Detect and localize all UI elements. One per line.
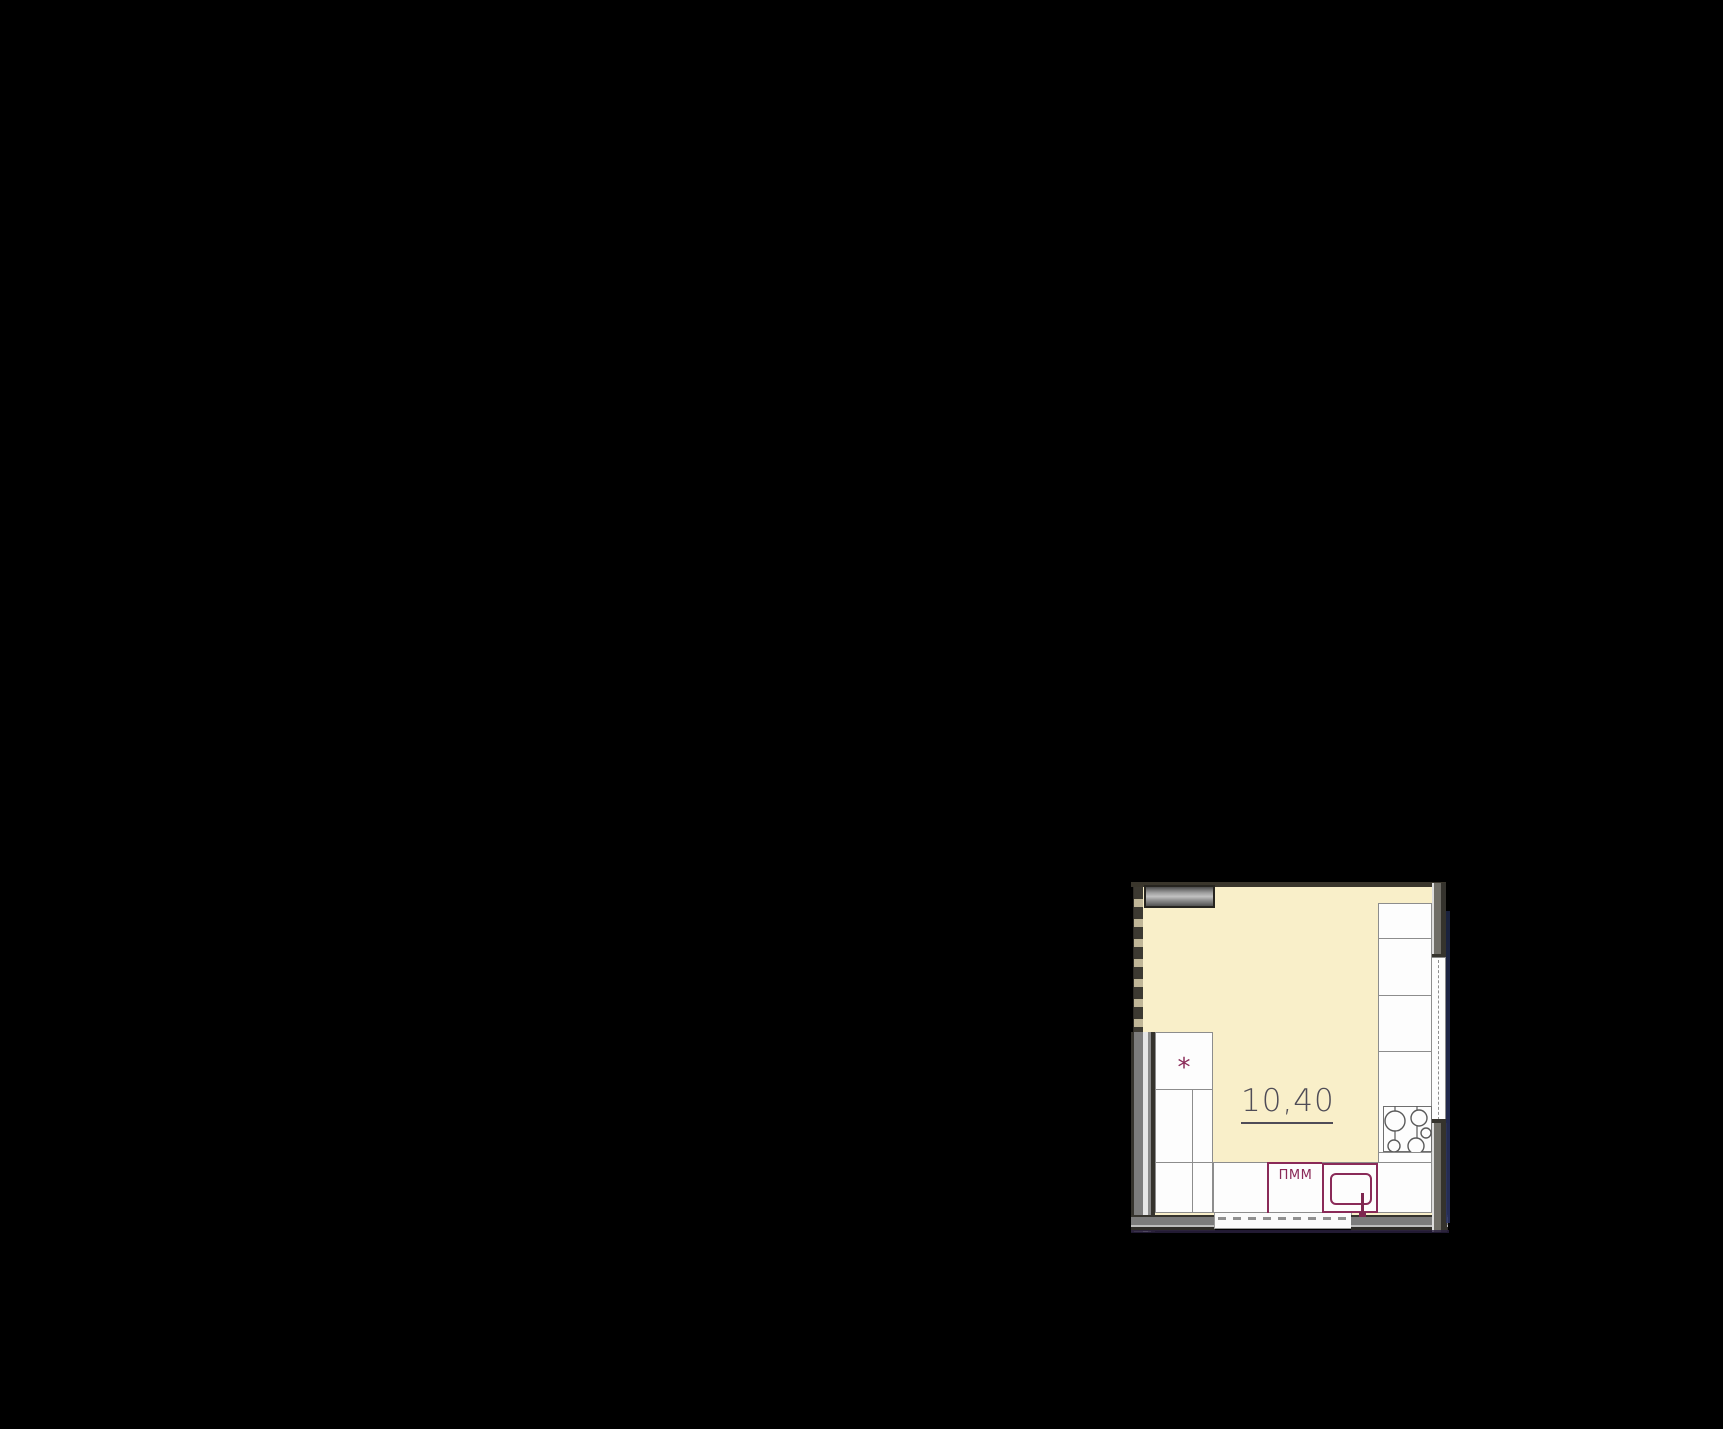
black-background: * ПММ 10,40 xyxy=(0,0,1723,1429)
door-threshold xyxy=(1214,1212,1352,1229)
window-centerline xyxy=(1438,960,1439,1120)
cabinet-divider xyxy=(1155,1089,1213,1090)
cabinet-divider xyxy=(1378,1152,1432,1153)
dishwasher-cell: ПММ xyxy=(1267,1162,1322,1213)
cabinet-divider xyxy=(1155,1162,1213,1163)
upper-cabinet-block xyxy=(1144,885,1215,908)
cabinet-divider xyxy=(1378,995,1432,996)
edge-artifact xyxy=(1131,1230,1449,1233)
sink-icon xyxy=(1322,1163,1378,1213)
edge-artifact xyxy=(1446,911,1450,1223)
wall-left-dashed xyxy=(1133,887,1143,1033)
sink-tap-icon xyxy=(1361,1193,1364,1217)
sink-bowl xyxy=(1330,1173,1372,1205)
room-area-label: 10,40 xyxy=(1241,1083,1333,1124)
cabinet-divider xyxy=(1378,1051,1432,1052)
cabinet-divider xyxy=(1192,1089,1193,1213)
cooktop-icon xyxy=(1383,1106,1432,1152)
cabinet-divider xyxy=(1378,938,1432,939)
wall-bottom-left xyxy=(1131,1215,1215,1231)
wall-left xyxy=(1131,1032,1155,1232)
wall-right-bottom xyxy=(1432,1123,1447,1232)
floor-plan: * ПММ 10,40 xyxy=(1131,881,1451,1233)
fridge-marker-icon: * xyxy=(1155,1032,1213,1089)
wall-right-top xyxy=(1432,883,1446,959)
dishwasher-label: ПММ xyxy=(1269,1168,1322,1183)
threshold-track xyxy=(1218,1217,1348,1220)
